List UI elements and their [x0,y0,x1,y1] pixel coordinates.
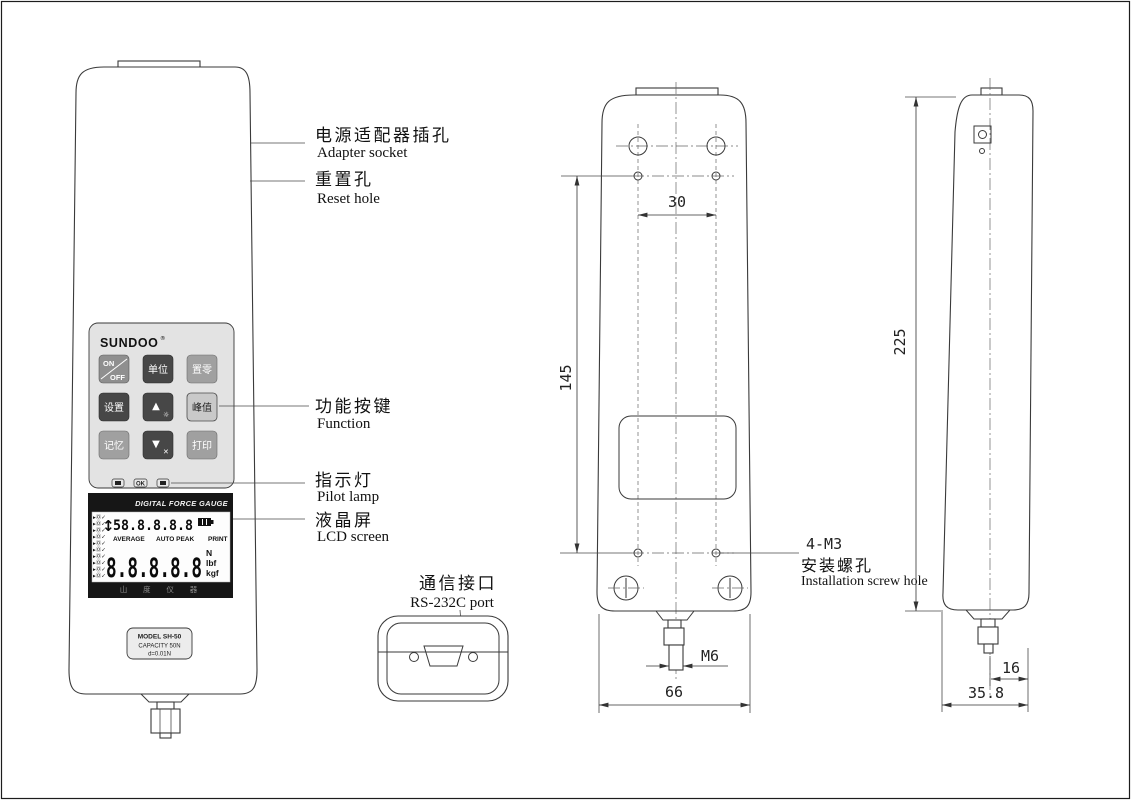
svg-text:▸Ⓞ✓: ▸Ⓞ✓ [93,565,106,573]
diagram-page: SUNDOO ® ON OFF 单位 置零 设置 ▲ ☼ 峰值 [0,0,1131,800]
svg-text:置零: 置零 [192,364,212,376]
top-housing-outer [378,616,508,701]
registered-mark: ® [160,335,166,342]
button-down-clear: ▼ ✕ [143,431,173,459]
dim-66: 66 [665,683,683,701]
function-label-zh: 功能按键 [315,397,393,416]
dim-m6: M6 [701,647,719,665]
pilot-label-en: Pilot lamp [317,489,379,505]
up-arrow-icon: ▲ [152,401,160,412]
button-print: 打印 [187,431,217,459]
button-peak: 峰值 [187,393,217,421]
lcd-unit-kgf: kgf [206,568,219,578]
rear-body-outline [597,95,751,611]
dim-145: 145 [557,364,575,391]
dim-30: 30 [668,193,686,211]
force-gauge-drawing: SUNDOO ® ON OFF 单位 置零 设置 ▲ ☼ 峰值 [0,0,1131,800]
on-label: ON [103,359,114,368]
model-capacity: CAPACITY 50N [138,644,180,650]
button-zero: 置零 [187,355,217,383]
svg-text:单位: 单位 [148,363,168,376]
button-up-backlight: ▲ ☼ [143,393,173,421]
lcd-label-en: LCD screen [317,529,390,545]
down-arrow-icon: ▼ [152,439,160,450]
svg-text:▸Ⓞ✓: ▸Ⓞ✓ [93,559,106,567]
svg-text:OK: OK [136,482,146,488]
backlight-icon: ☼ [163,411,169,419]
button-memory: 记忆 [99,431,129,459]
dim-225: 225 [891,328,909,355]
lcd-unit-lbf: lbf [206,558,217,568]
lcd-mode-autopeak: AUTO PEAK [156,536,194,543]
off-label: OFF [110,373,125,382]
svg-text:▸Ⓞ✓: ▸Ⓞ✓ [93,539,106,547]
pilot-label-zh: 指示灯 [315,471,374,490]
front-view: SUNDOO ® ON OFF 单位 置零 设置 ▲ ☼ 峰值 [69,61,257,738]
svg-text:▸Ⓞ✓: ▸Ⓞ✓ [93,552,106,560]
side-top-tab [981,88,1002,95]
comm-label-en: RS-232C port [410,595,495,611]
adapter-label-en: Adapter socket [317,145,408,161]
lcd-footer-brand: 山 度 仪 器 [120,584,205,594]
model-plate: MODEL SH-50 CAPACITY 50N d=0.01N [127,628,192,659]
screw-label-zh: 安装螺孔 [801,557,873,575]
lcd-module: DIGITAL FORCE GAUGE ▸Ⓞ✓ ▸Ⓞ✓ ▸Ⓞ✓ ▸Ⓞ✓ ▸Ⓞ✓ … [88,493,233,598]
dim-16: 16 [1002,659,1020,677]
lcd-main-reading: 8.8.8.8.8 [106,553,202,584]
dim-35-8: 35.8 [968,684,1004,702]
button-on-off: ON OFF [99,355,129,383]
svg-text:记忆: 记忆 [104,439,124,452]
lcd-header: DIGITAL FORCE GAUGE [135,499,229,508]
reset-label-zh: 重置孔 [315,170,374,189]
model-number: MODEL SH-50 [138,634,182,641]
screw-label-en: Installation screw hole [801,574,928,589]
comm-label-zh: 通信接口 [419,574,497,593]
function-label-en: Function [317,416,371,432]
side-body-outline [943,95,1033,610]
lcd-top-reading: 58.8.8.8.8 [113,518,193,534]
button-unit: 单位 [143,355,173,383]
svg-text:设置: 设置 [104,402,124,414]
svg-text:▸Ⓞ✓: ▸Ⓞ✓ [93,546,106,554]
svg-text:▸Ⓞ✓: ▸Ⓞ✓ [93,572,106,580]
model-resolution: d=0.01N [148,652,171,658]
brand-logo: SUNDOO [100,336,158,350]
clear-x-icon: ✕ [163,448,169,456]
screw-code: 4-M3 [806,535,842,553]
svg-text:打印: 打印 [192,439,212,452]
pilot-lamps: OK [112,479,169,488]
lcd-mode-print: PRINT [208,536,228,543]
svg-text:峰值: 峰值 [192,401,212,414]
lcd-label-zh: 液晶屏 [315,511,374,530]
adapter-label-zh: 电源适配器插孔 [315,126,452,145]
lcd-unit-n: N [206,548,212,558]
lcd-mode-average: AVERAGE [113,536,145,543]
rear-top-tab [636,88,718,95]
button-set: 设置 [99,393,129,421]
reset-label-en: Reset hole [317,191,380,207]
